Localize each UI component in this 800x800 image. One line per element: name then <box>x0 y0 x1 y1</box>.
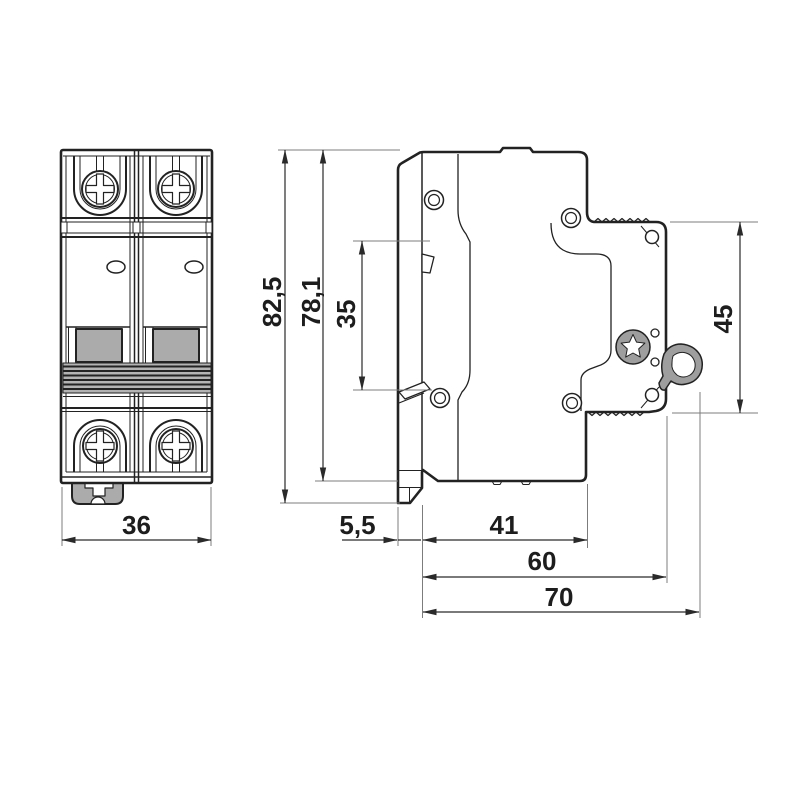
toggle-tip-inner <box>672 352 695 377</box>
dim-label-depth-to-bezel: 60 <box>528 546 557 576</box>
side-view <box>398 148 702 503</box>
breaker-drawing: 36 82,5 78,1 35 45 5,5 41 60 70 <box>0 0 800 800</box>
dim-label-body-height: 78,1 <box>296 277 326 328</box>
dim-label-rear-depth: 41 <box>490 510 519 540</box>
din-clip-tab <box>72 483 123 504</box>
rivet-bottom-left <box>431 389 450 408</box>
toggle-tip-hook <box>659 344 702 390</box>
label-window-left <box>107 261 125 273</box>
dim-label-total-height: 82,5 <box>257 277 287 328</box>
dim-label-latch-protrusion: 5,5 <box>339 510 375 540</box>
dim-label-front-width: 36 <box>122 510 151 540</box>
toggle-handle-left <box>69 327 123 363</box>
rivet-top-right <box>562 209 581 228</box>
drawing-page: 36 82,5 78,1 35 45 5,5 41 60 70 <box>0 0 800 800</box>
toggle-handle-right <box>146 327 200 363</box>
torx-axle <box>616 330 650 364</box>
dim-label-front-section: 45 <box>708 305 738 334</box>
rivet-top-left <box>425 191 444 210</box>
rivet-bottom-right <box>563 394 582 413</box>
dim-label-overall-depth: 70 <box>545 582 574 612</box>
label-window-right <box>185 261 203 273</box>
bezel-hole-bottom <box>646 389 659 402</box>
dim-label-din-slot: 35 <box>331 300 361 329</box>
pin-hole-lower <box>651 358 659 366</box>
pin-hole-upper <box>651 329 659 337</box>
front-view <box>61 150 212 504</box>
bezel-hole-top <box>646 231 659 244</box>
